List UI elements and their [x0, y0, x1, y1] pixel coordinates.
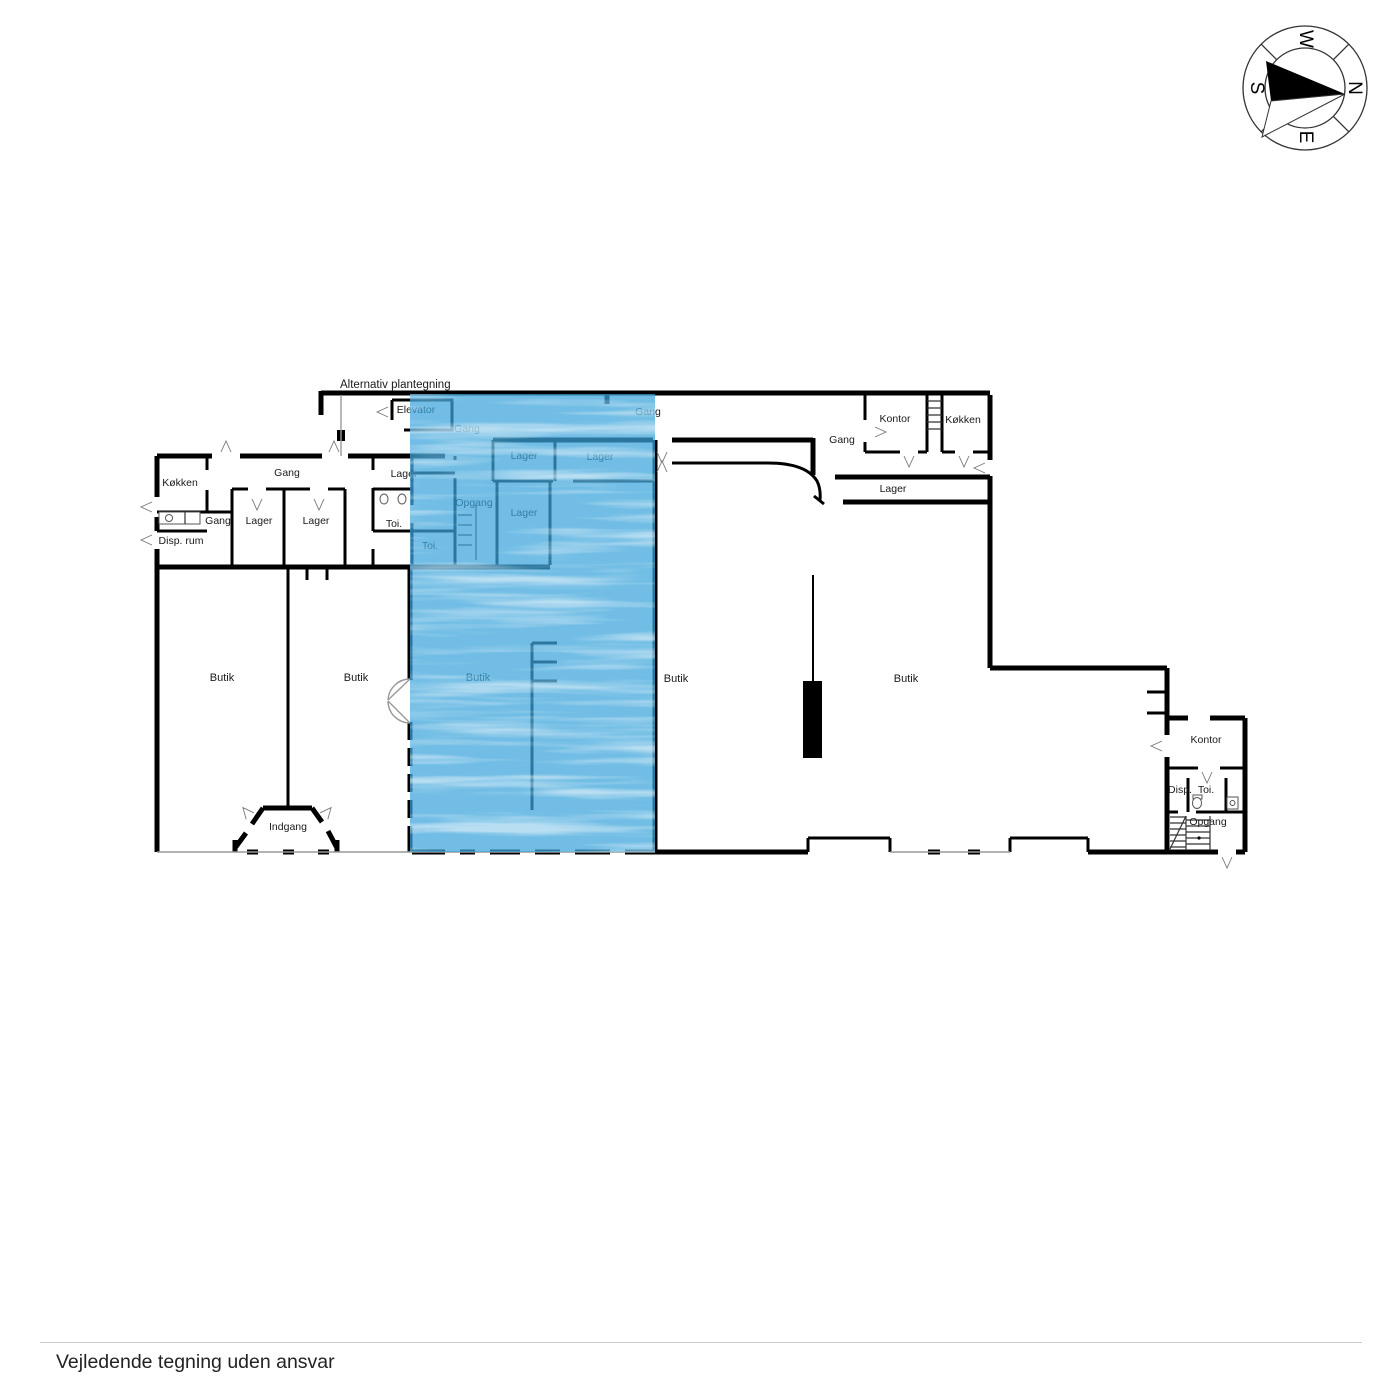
room-label-toi-right: Toi.	[1198, 784, 1214, 796]
room-label-lager-corridor: Lager	[880, 483, 907, 495]
toilet-fixture-right	[1193, 795, 1239, 809]
room-label-disp-rum: Disp. rum	[159, 535, 204, 547]
stair-dot	[1197, 836, 1200, 839]
room-label-gang-right: Gang	[829, 434, 855, 446]
toilet-fixtures-left	[380, 494, 406, 504]
door-swing-icon	[875, 427, 886, 437]
compass-rose: W N E S	[1243, 26, 1367, 150]
room-label-butik-3: Butik	[664, 673, 689, 685]
room-label-toi-mid: Toi.	[386, 518, 402, 530]
door-swings	[141, 407, 1232, 868]
floorplan-drawing: Alternativ plantegning	[0, 0, 1400, 1400]
door-swing-icon	[141, 502, 152, 512]
room-label-butik-1: Butik	[210, 672, 235, 684]
kitchen-counter	[159, 512, 200, 524]
room-label-disp-right: Disp.	[1168, 784, 1192, 796]
door-swing-icon	[959, 456, 969, 467]
room-label-lager-left-1: Lager	[246, 515, 273, 527]
room-label-gang-small: Gang	[205, 515, 231, 527]
compass-label-e: E	[1295, 131, 1316, 144]
disclaimer-text: Vejledende tegning uden ansvar	[56, 1351, 1362, 1374]
compass-label-n: N	[1344, 81, 1365, 95]
door-swing-icon	[221, 441, 231, 452]
room-label-kontor-top: Kontor	[880, 413, 911, 425]
door-swing-icon	[1222, 857, 1232, 868]
compass-label-w: W	[1295, 30, 1316, 48]
door-swing-icon	[974, 463, 985, 473]
door-swing-icon	[1151, 741, 1162, 751]
door-swing-icon	[239, 804, 254, 819]
room-label-indgang: Indgang	[269, 821, 307, 833]
pillar-counter	[803, 681, 822, 758]
door-swing-icon	[377, 407, 388, 417]
door-swing-icon	[329, 441, 339, 452]
room-label-koekken-left: Køkken	[162, 477, 198, 489]
walls-thick	[157, 391, 1245, 852]
room-label-gang-left: Gang	[274, 467, 300, 479]
room-label-butik-4: Butik	[894, 673, 919, 685]
door-swing-icon	[314, 499, 324, 510]
door-swing-icon	[252, 499, 262, 510]
door-swing-icon	[904, 456, 914, 467]
highlighted-area	[410, 394, 655, 852]
door-swing-icon	[141, 535, 152, 545]
door-swing-icon	[320, 804, 335, 819]
footer: Vejledende tegning uden ansvar	[40, 1342, 1362, 1374]
curved-wall	[672, 463, 820, 500]
double-door	[388, 679, 410, 723]
room-label-kontor-right: Kontor	[1191, 734, 1222, 746]
alt-plan-note: Alternativ plantegning	[340, 379, 451, 391]
room-label-lager-left-2: Lager	[303, 515, 330, 527]
room-label-butik-2: Butik	[344, 672, 369, 684]
door-swing-icon	[657, 461, 667, 472]
compass-label-s: S	[1246, 82, 1267, 95]
room-label-opgang-right: Opgang	[1189, 816, 1227, 828]
floorplan-page: Alternativ plantegning	[0, 0, 1400, 1400]
stairs-top-right	[927, 401, 942, 429]
room-label-koekken-right: Køkken	[945, 414, 981, 426]
door-swing-icon	[1202, 772, 1212, 783]
